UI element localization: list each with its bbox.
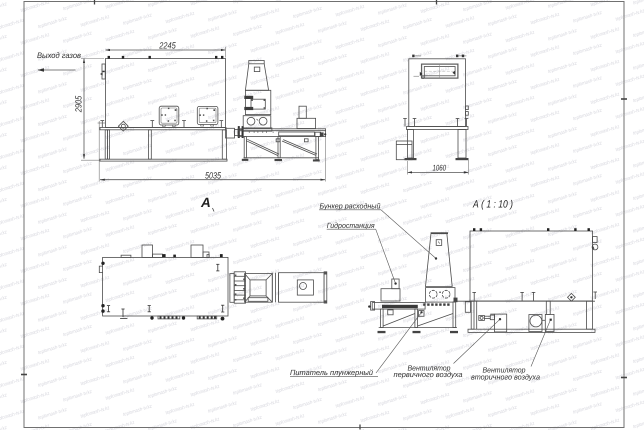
svg-text:Гидростанция: Гидростанция xyxy=(327,221,375,230)
svg-text:вторичного воздуха: вторичного воздуха xyxy=(471,372,540,381)
svg-text:Питатель плунжерный: Питатель плунжерный xyxy=(290,368,374,377)
svg-text:Выход газов: Выход газов xyxy=(37,51,81,60)
svg-text:А: А xyxy=(200,195,211,210)
svg-text:А ( 1 : 10 ): А ( 1 : 10 ) xyxy=(472,199,513,211)
svg-text:2245: 2245 xyxy=(158,41,176,51)
svg-text:2905: 2905 xyxy=(74,95,84,113)
svg-text:первичного воздуха: первичного воздуха xyxy=(394,370,463,379)
svg-text:Бункер расходный: Бункер расходный xyxy=(320,201,382,210)
svg-text:5035: 5035 xyxy=(205,171,222,181)
svg-text:1060: 1060 xyxy=(432,164,446,173)
